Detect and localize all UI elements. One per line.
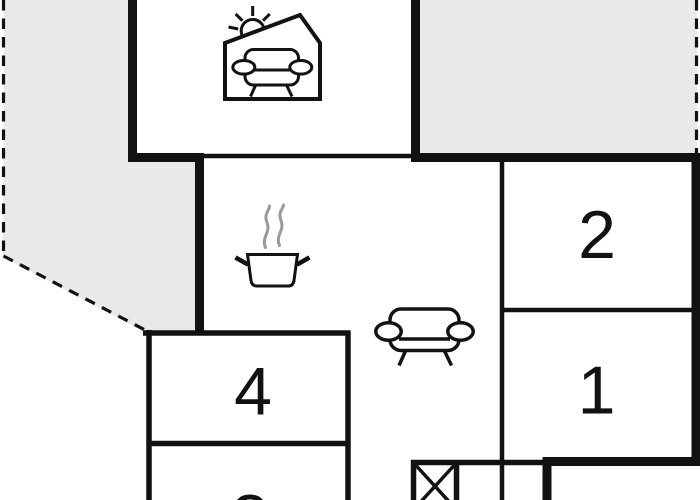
room-label-3: 3 — [231, 481, 269, 500]
steam-icon — [264, 206, 269, 248]
sofa-armrest — [233, 61, 255, 75]
crossed-box-icon — [416, 466, 454, 500]
pot-body — [248, 255, 298, 287]
room-label-4: 4 — [234, 354, 272, 430]
terrace-area-left — [3, 0, 200, 333]
pot-handle — [297, 258, 310, 265]
cooking-pot-icon — [236, 205, 310, 286]
sofa-armrest — [448, 323, 473, 340]
room-label-1: 1 — [578, 353, 616, 429]
sun-ray — [229, 27, 239, 29]
sofa-leg — [399, 351, 406, 366]
sofa-armrest — [290, 61, 312, 75]
steam-icon — [278, 205, 283, 246]
sofa-icon — [376, 309, 473, 366]
pot-handle — [236, 258, 249, 265]
covered-terrace-icon — [225, 6, 320, 99]
sofa-armrest — [376, 323, 401, 340]
floor-plan-canvas: 2 1 4 3 — [0, 0, 700, 500]
terrace-area-top-right — [415, 0, 697, 158]
terrace-areas — [3, 0, 697, 333]
sun-ray — [263, 14, 270, 21]
sun-ray — [236, 14, 243, 21]
sofa-leg — [445, 351, 452, 366]
floor-plan: 2 1 4 3 — [0, 0, 700, 500]
room-label-2: 2 — [578, 197, 616, 273]
